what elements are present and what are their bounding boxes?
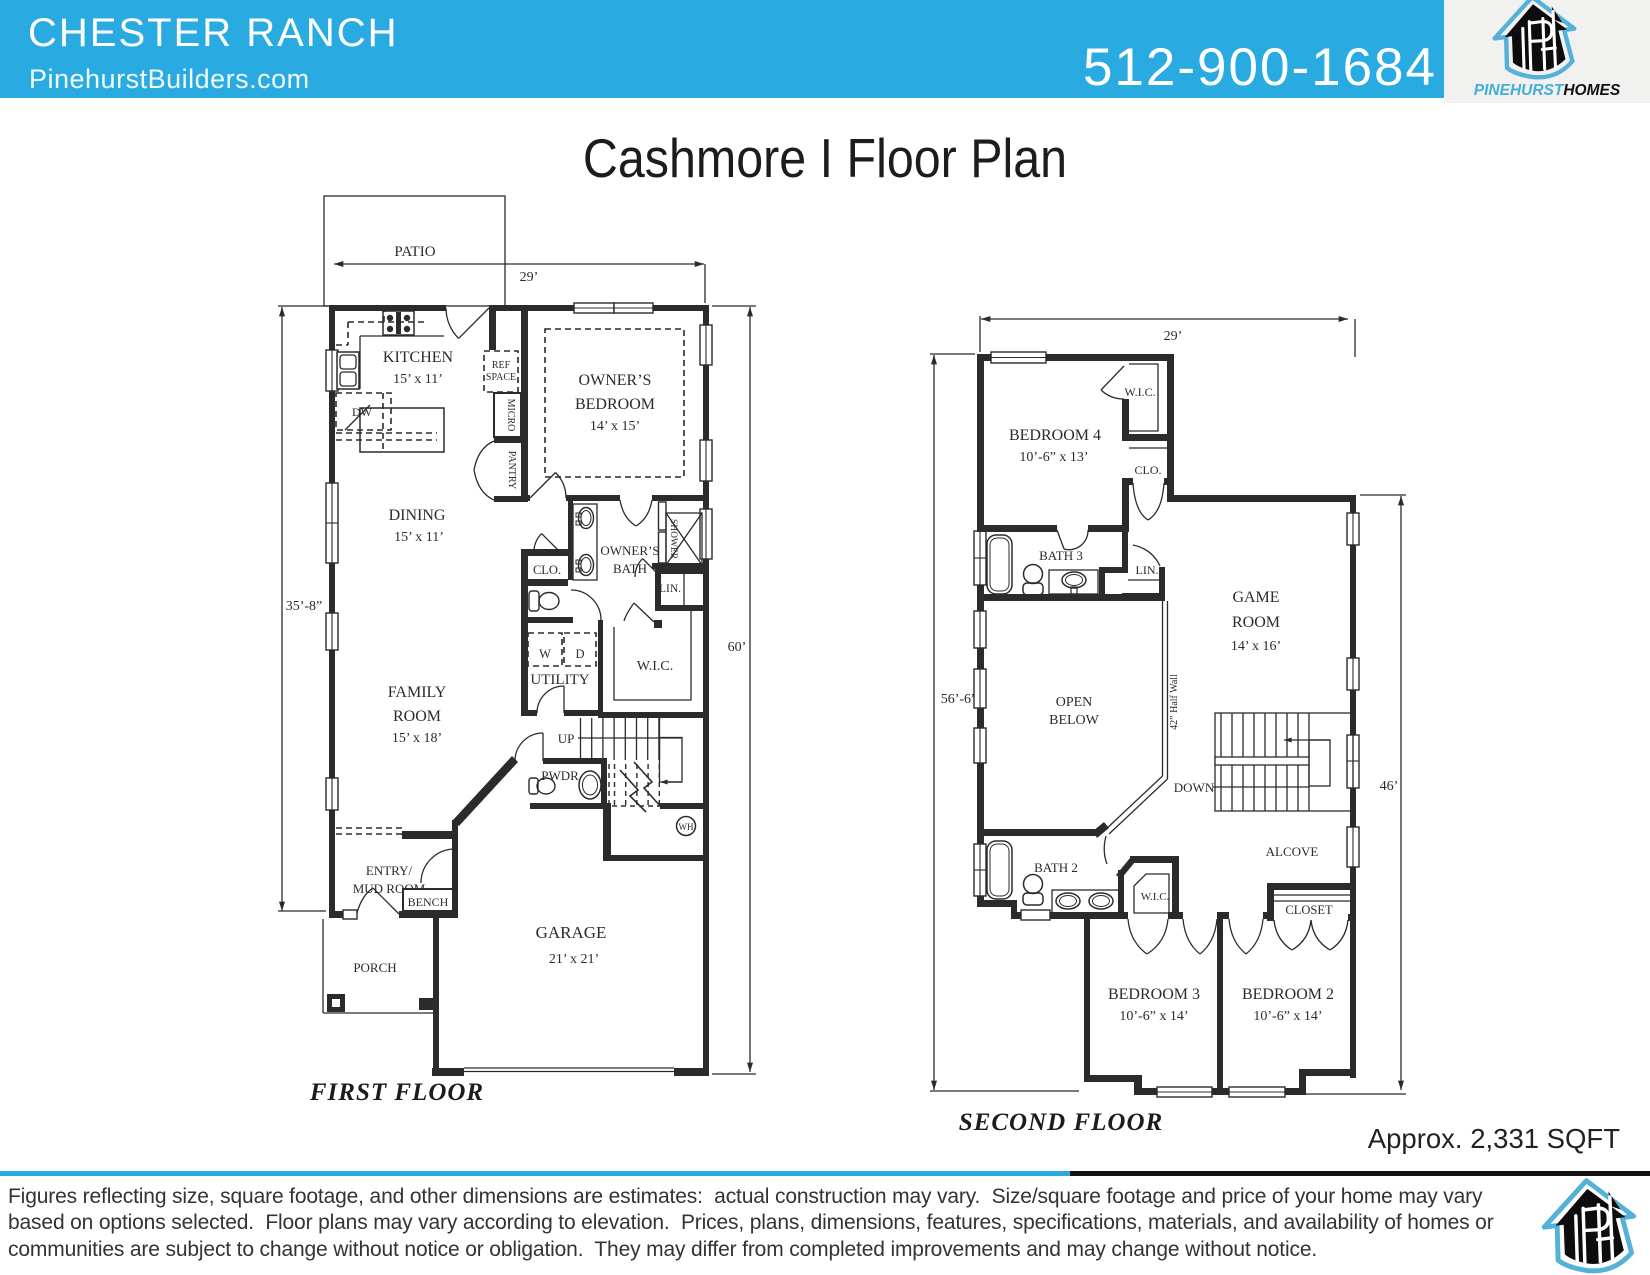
svg-text:SPACE: SPACE [486,372,516,383]
svg-text:29’: 29’ [1164,329,1183,344]
svg-text:BEDROOM 4: BEDROOM 4 [1009,427,1101,444]
svg-text:PATIO: PATIO [394,244,435,260]
svg-text:CLOSET: CLOSET [1285,903,1333,917]
svg-text:GARAGE: GARAGE [536,923,607,942]
svg-text:W.I.C.: W.I.C. [1124,385,1155,399]
svg-text:10’-6” x 14’: 10’-6” x 14’ [1253,1009,1322,1024]
svg-text:BEDROOM: BEDROOM [575,396,655,413]
svg-text:15’ x 18’: 15’ x 18’ [392,731,442,746]
svg-text:OWNER’S: OWNER’S [600,543,659,558]
svg-text:46’: 46’ [1380,779,1399,794]
svg-text:14’ x 15’: 14’ x 15’ [590,419,640,434]
svg-text:ROOM: ROOM [393,708,441,725]
svg-text:UP: UP [558,731,575,746]
svg-text:PWDR: PWDR [541,768,579,783]
svg-text:REF: REF [492,360,511,371]
svg-text:BEDROOM 3: BEDROOM 3 [1108,986,1200,1003]
svg-text:PORCH: PORCH [353,960,396,975]
svg-text:SECOND FLOOR: SECOND FLOOR [959,1109,1163,1136]
svg-text:BEDROOM 2: BEDROOM 2 [1242,986,1334,1003]
svg-text:W.I.C.: W.I.C. [1141,891,1170,903]
svg-text:10’-6” x 14’: 10’-6” x 14’ [1119,1009,1188,1024]
svg-text:14’ x 16’: 14’ x 16’ [1231,639,1281,654]
svg-text:W.I.C.: W.I.C. [637,659,673,674]
svg-text:DW: DW [352,405,373,419]
svg-text:SHOWER: SHOWER [668,519,678,560]
svg-text:10’-6” x 13’: 10’-6” x 13’ [1019,450,1088,465]
svg-text:OPEN: OPEN [1056,695,1093,710]
svg-text:BATH: BATH [613,561,647,576]
svg-text:FIRST FLOOR: FIRST FLOOR [309,1079,484,1106]
svg-text:BATH 2: BATH 2 [1034,860,1078,875]
svg-text:CLO.: CLO. [533,563,561,577]
svg-text:D: D [575,647,584,661]
svg-text:60’: 60’ [728,640,747,655]
svg-text:21’ x 21’: 21’ x 21’ [549,952,599,967]
svg-text:42” Half Wall: 42” Half Wall [1169,674,1180,730]
svg-text:GAME: GAME [1232,589,1279,606]
svg-text:DOWN: DOWN [1174,780,1215,795]
svg-text:WH: WH [679,822,694,832]
svg-text:ROOM: ROOM [1232,614,1280,631]
svg-text:BELOW: BELOW [1049,713,1100,728]
svg-text:DINING: DINING [389,507,446,524]
svg-text:LIN.: LIN. [659,583,681,595]
svg-text:56’-6”: 56’-6” [941,692,978,707]
svg-text:29’: 29’ [520,270,539,285]
svg-text:CLO.: CLO. [1135,463,1162,477]
svg-text:BENCH: BENCH [408,895,449,909]
svg-text:15’ x 11’: 15’ x 11’ [394,530,444,545]
svg-text:LIN.: LIN. [1136,563,1159,577]
svg-text:35’-8”: 35’-8” [286,599,323,614]
svg-text:KITCHEN: KITCHEN [383,349,454,366]
svg-text:ENTRY/: ENTRY/ [366,863,413,878]
svg-text:W: W [539,647,551,661]
svg-text:OWNER’S: OWNER’S [579,372,652,389]
svg-text:UTILITY: UTILITY [530,672,589,688]
svg-text:BATH 3: BATH 3 [1039,548,1083,563]
svg-text:FAMILY: FAMILY [388,684,447,701]
svg-text:PANTRY: PANTRY [506,451,517,490]
svg-text:ALCOVE: ALCOVE [1266,844,1319,859]
svg-text:MICRO: MICRO [505,399,516,432]
svg-text:15’ x 11’: 15’ x 11’ [393,372,443,387]
